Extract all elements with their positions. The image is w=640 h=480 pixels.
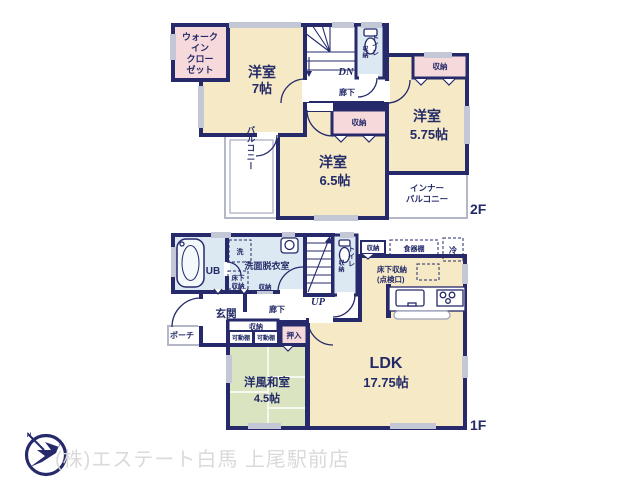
label-washroom: 洗面脱衣室 xyxy=(244,260,289,271)
window xyxy=(198,86,204,128)
label-closet-top: 収納 xyxy=(367,243,381,252)
label-movable-shelf-1: 可動棚 xyxy=(232,334,250,342)
label-toilet-1f: トイレ xyxy=(348,245,356,268)
label-movable-shelf-2: 可動棚 xyxy=(257,334,275,342)
door-arc-entrance xyxy=(172,298,201,327)
label-underfloor-line1: 床下収納 xyxy=(377,264,407,274)
window xyxy=(226,355,232,383)
label-toilet-2f: トイレ xyxy=(372,34,380,57)
label-room7-name: 洋室 xyxy=(248,64,276,80)
label-ldk-name: LDK xyxy=(370,355,403,372)
label-hallway-2f: 廊下 xyxy=(339,87,355,97)
floor2-plan: ウォーク イン クロー ゼット 洋室 7帖 洋室 6.5帖 洋室 5.75帖 収… xyxy=(170,22,487,221)
label-porch: ポーチ xyxy=(170,330,194,340)
label-entrance: 玄関 xyxy=(216,307,237,320)
label-unit-bath: UB xyxy=(206,266,220,277)
window xyxy=(282,232,295,238)
label-closet-toilet-2f: 収納 xyxy=(361,45,368,60)
window xyxy=(462,356,468,378)
label-room65-size: 6.5帖 xyxy=(319,173,350,188)
label-room575-size: 5.75帖 xyxy=(410,127,448,142)
label-ldk-size: 17.75帖 xyxy=(363,375,409,390)
label-underfloor-small-line2: 収納 xyxy=(232,281,246,290)
window xyxy=(170,34,176,60)
label-underfloor-line2: (点検口) xyxy=(377,274,405,284)
window xyxy=(424,52,452,58)
window xyxy=(229,22,301,28)
window xyxy=(314,215,358,221)
label-cupboard: 食器棚 xyxy=(403,244,425,253)
label-room7-size: 7帖 xyxy=(252,81,272,96)
window xyxy=(464,106,470,144)
label-closet-washroom: 収納 xyxy=(259,282,273,291)
label-closet-mid-2f: 収納 xyxy=(352,117,367,127)
label-closet-right-2f: 収納 xyxy=(433,61,448,71)
label-underfloor-small-line1: 床下 xyxy=(232,273,246,282)
floor-plan-page: ウォーク イン クロー ゼット 洋室 7帖 洋室 6.5帖 洋室 5.75帖 収… xyxy=(0,0,640,480)
label-wic-line1: ウォーク xyxy=(182,32,218,42)
window xyxy=(340,232,354,238)
company-name: (株)エステート白馬 上尾駅前店 xyxy=(55,448,350,471)
label-room575-name: 洋室 xyxy=(413,108,441,124)
label-fridge: 冷 xyxy=(449,245,457,255)
window xyxy=(332,22,354,28)
bathtub-icon xyxy=(177,239,204,287)
label-balcony-2f: バルコニー xyxy=(246,125,256,171)
label-room65-name: 洋室 xyxy=(319,154,347,170)
label-stairs-down: DN xyxy=(337,67,354,78)
label-washitsu-name: 洋風和室 xyxy=(244,375,290,389)
window xyxy=(248,423,281,429)
label-inner-balcony-line2: バルコニー xyxy=(406,194,448,204)
label-stairs-up: UP xyxy=(311,297,326,308)
window xyxy=(390,423,436,429)
label-hallway-1f: 廊下 xyxy=(269,304,285,314)
floor1-plan: UB 洗 洗面脱衣室 床下 収納 収納 収納 食器棚 冷 床下収納 (点検口) … xyxy=(168,232,487,433)
label-wic-line3: クロー xyxy=(186,54,213,64)
wall-stub-entrance xyxy=(243,292,247,312)
window xyxy=(462,264,468,284)
label-oshiire: 押入 xyxy=(287,330,302,340)
label-closet-hall: 収納 xyxy=(249,322,263,331)
label-washer: 洗 xyxy=(237,247,244,256)
floor-plan-image: ウォーク イン クロー ゼット 洋室 7帖 洋室 6.5帖 洋室 5.75帖 収… xyxy=(0,0,640,480)
closet-bar xyxy=(257,291,273,294)
svg-text:N: N xyxy=(27,433,31,439)
label-washitsu-size: 4.5帖 xyxy=(254,391,280,405)
label-wic-line2: イン xyxy=(191,43,209,53)
label-inner-balcony-line1: インナー xyxy=(410,183,444,193)
window xyxy=(361,22,382,28)
label-wic-line4: ゼット xyxy=(186,64,213,75)
floor2-tag: 2F xyxy=(470,201,487,217)
washbasin-icon xyxy=(281,238,298,253)
window xyxy=(171,247,177,277)
floor1-tag: 1F xyxy=(470,417,487,433)
footer: N (株)エステート白馬 上尾駅前店 xyxy=(27,433,350,475)
label-closet-toilet-1f: 収納 xyxy=(337,259,344,274)
window xyxy=(211,232,231,238)
